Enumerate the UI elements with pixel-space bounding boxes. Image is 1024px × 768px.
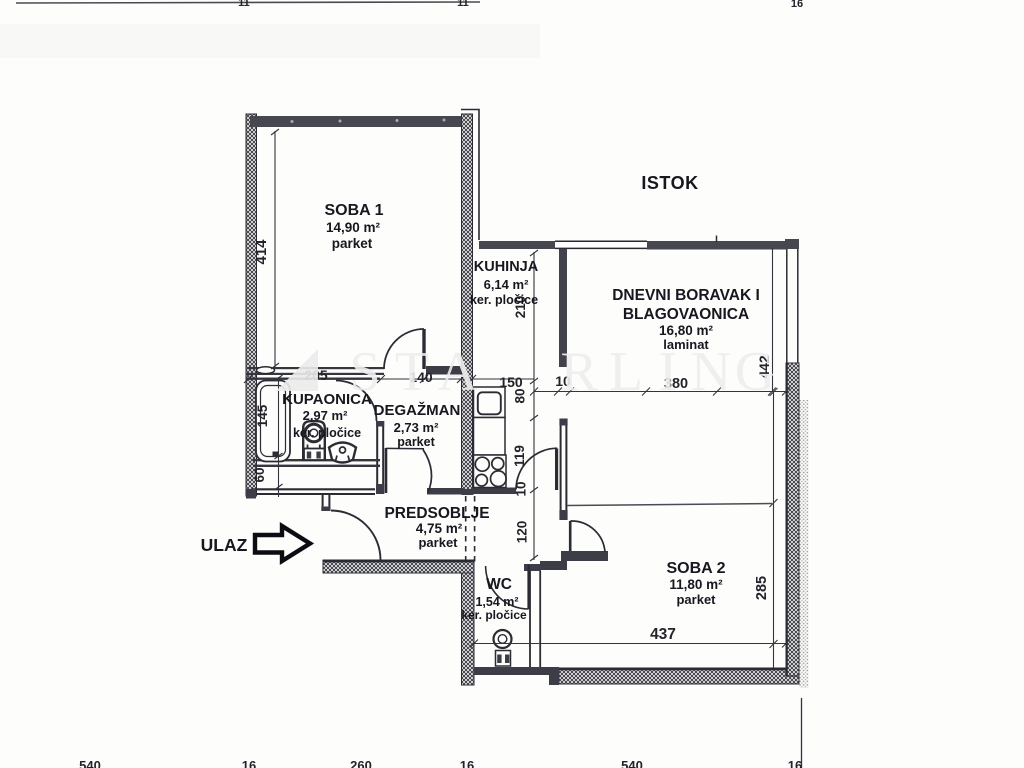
- svg-text:2,97 m²: 2,97 m²: [303, 408, 348, 423]
- svg-text:119: 119: [512, 445, 527, 467]
- svg-text:ker. pločice: ker. pločice: [461, 608, 527, 622]
- svg-text:11: 11: [457, 0, 469, 9]
- svg-text:KUHINJA: KUHINJA: [474, 259, 539, 275]
- svg-text:150: 150: [499, 374, 523, 390]
- svg-text:14,90 m²: 14,90 m²: [326, 220, 381, 235]
- svg-text:414: 414: [253, 239, 270, 265]
- svg-text:T: T: [395, 341, 429, 403]
- svg-text:WC: WC: [486, 576, 512, 593]
- svg-text:437: 437: [650, 626, 676, 643]
- svg-text:R: R: [560, 341, 598, 403]
- svg-text:A: A: [438, 341, 479, 403]
- svg-text:80: 80: [513, 388, 528, 403]
- svg-text:16,80 m²: 16,80 m²: [659, 323, 714, 338]
- svg-text:10: 10: [514, 481, 529, 496]
- svg-text:ISTOK: ISTOK: [641, 173, 698, 193]
- svg-text:60: 60: [252, 467, 267, 482]
- svg-text:ULAZ: ULAZ: [201, 535, 248, 555]
- svg-text:I: I: [659, 341, 678, 403]
- svg-text:260: 260: [350, 758, 372, 768]
- svg-text:4,75 m²: 4,75 m²: [416, 521, 463, 536]
- svg-text:2,73 m²: 2,73 m²: [394, 420, 439, 435]
- svg-text:S: S: [349, 341, 380, 403]
- svg-text:parket: parket: [676, 592, 716, 607]
- svg-text:120: 120: [515, 521, 530, 544]
- svg-text:540: 540: [79, 758, 101, 768]
- svg-text:16: 16: [242, 758, 256, 768]
- svg-text:285: 285: [754, 576, 770, 600]
- svg-text:parket: parket: [418, 535, 458, 550]
- svg-text:ker. pločice: ker. pločice: [470, 293, 538, 307]
- svg-text:11,80 m²: 11,80 m²: [669, 577, 723, 592]
- svg-text:16: 16: [460, 758, 474, 768]
- svg-text:L: L: [609, 341, 643, 403]
- svg-text:ker. pločice: ker. pločice: [293, 426, 361, 440]
- svg-text:6,14 m²: 6,14 m²: [484, 277, 529, 292]
- svg-text:N: N: [691, 341, 731, 403]
- svg-text:PREDSOBLJE: PREDSOBLJE: [384, 505, 489, 522]
- svg-text:DEGAŽMAN: DEGAŽMAN: [374, 401, 461, 419]
- svg-text:SOBA 1: SOBA 1: [325, 202, 384, 219]
- svg-text:SOBA 2: SOBA 2: [667, 560, 726, 577]
- svg-text:1,54 m²: 1,54 m²: [475, 595, 518, 609]
- svg-text:G: G: [735, 341, 775, 403]
- svg-text:parket: parket: [332, 236, 373, 251]
- svg-text:16: 16: [788, 758, 802, 768]
- svg-text:11: 11: [238, 0, 250, 9]
- svg-text:parket: parket: [397, 435, 435, 449]
- svg-text:BLAGOVAONICA: BLAGOVAONICA: [623, 306, 749, 323]
- svg-text:145: 145: [255, 404, 270, 427]
- svg-text:16: 16: [791, 0, 803, 10]
- svg-text:540: 540: [621, 758, 643, 768]
- svg-text:DNEVNI BORAVAK I: DNEVNI BORAVAK I: [612, 287, 760, 304]
